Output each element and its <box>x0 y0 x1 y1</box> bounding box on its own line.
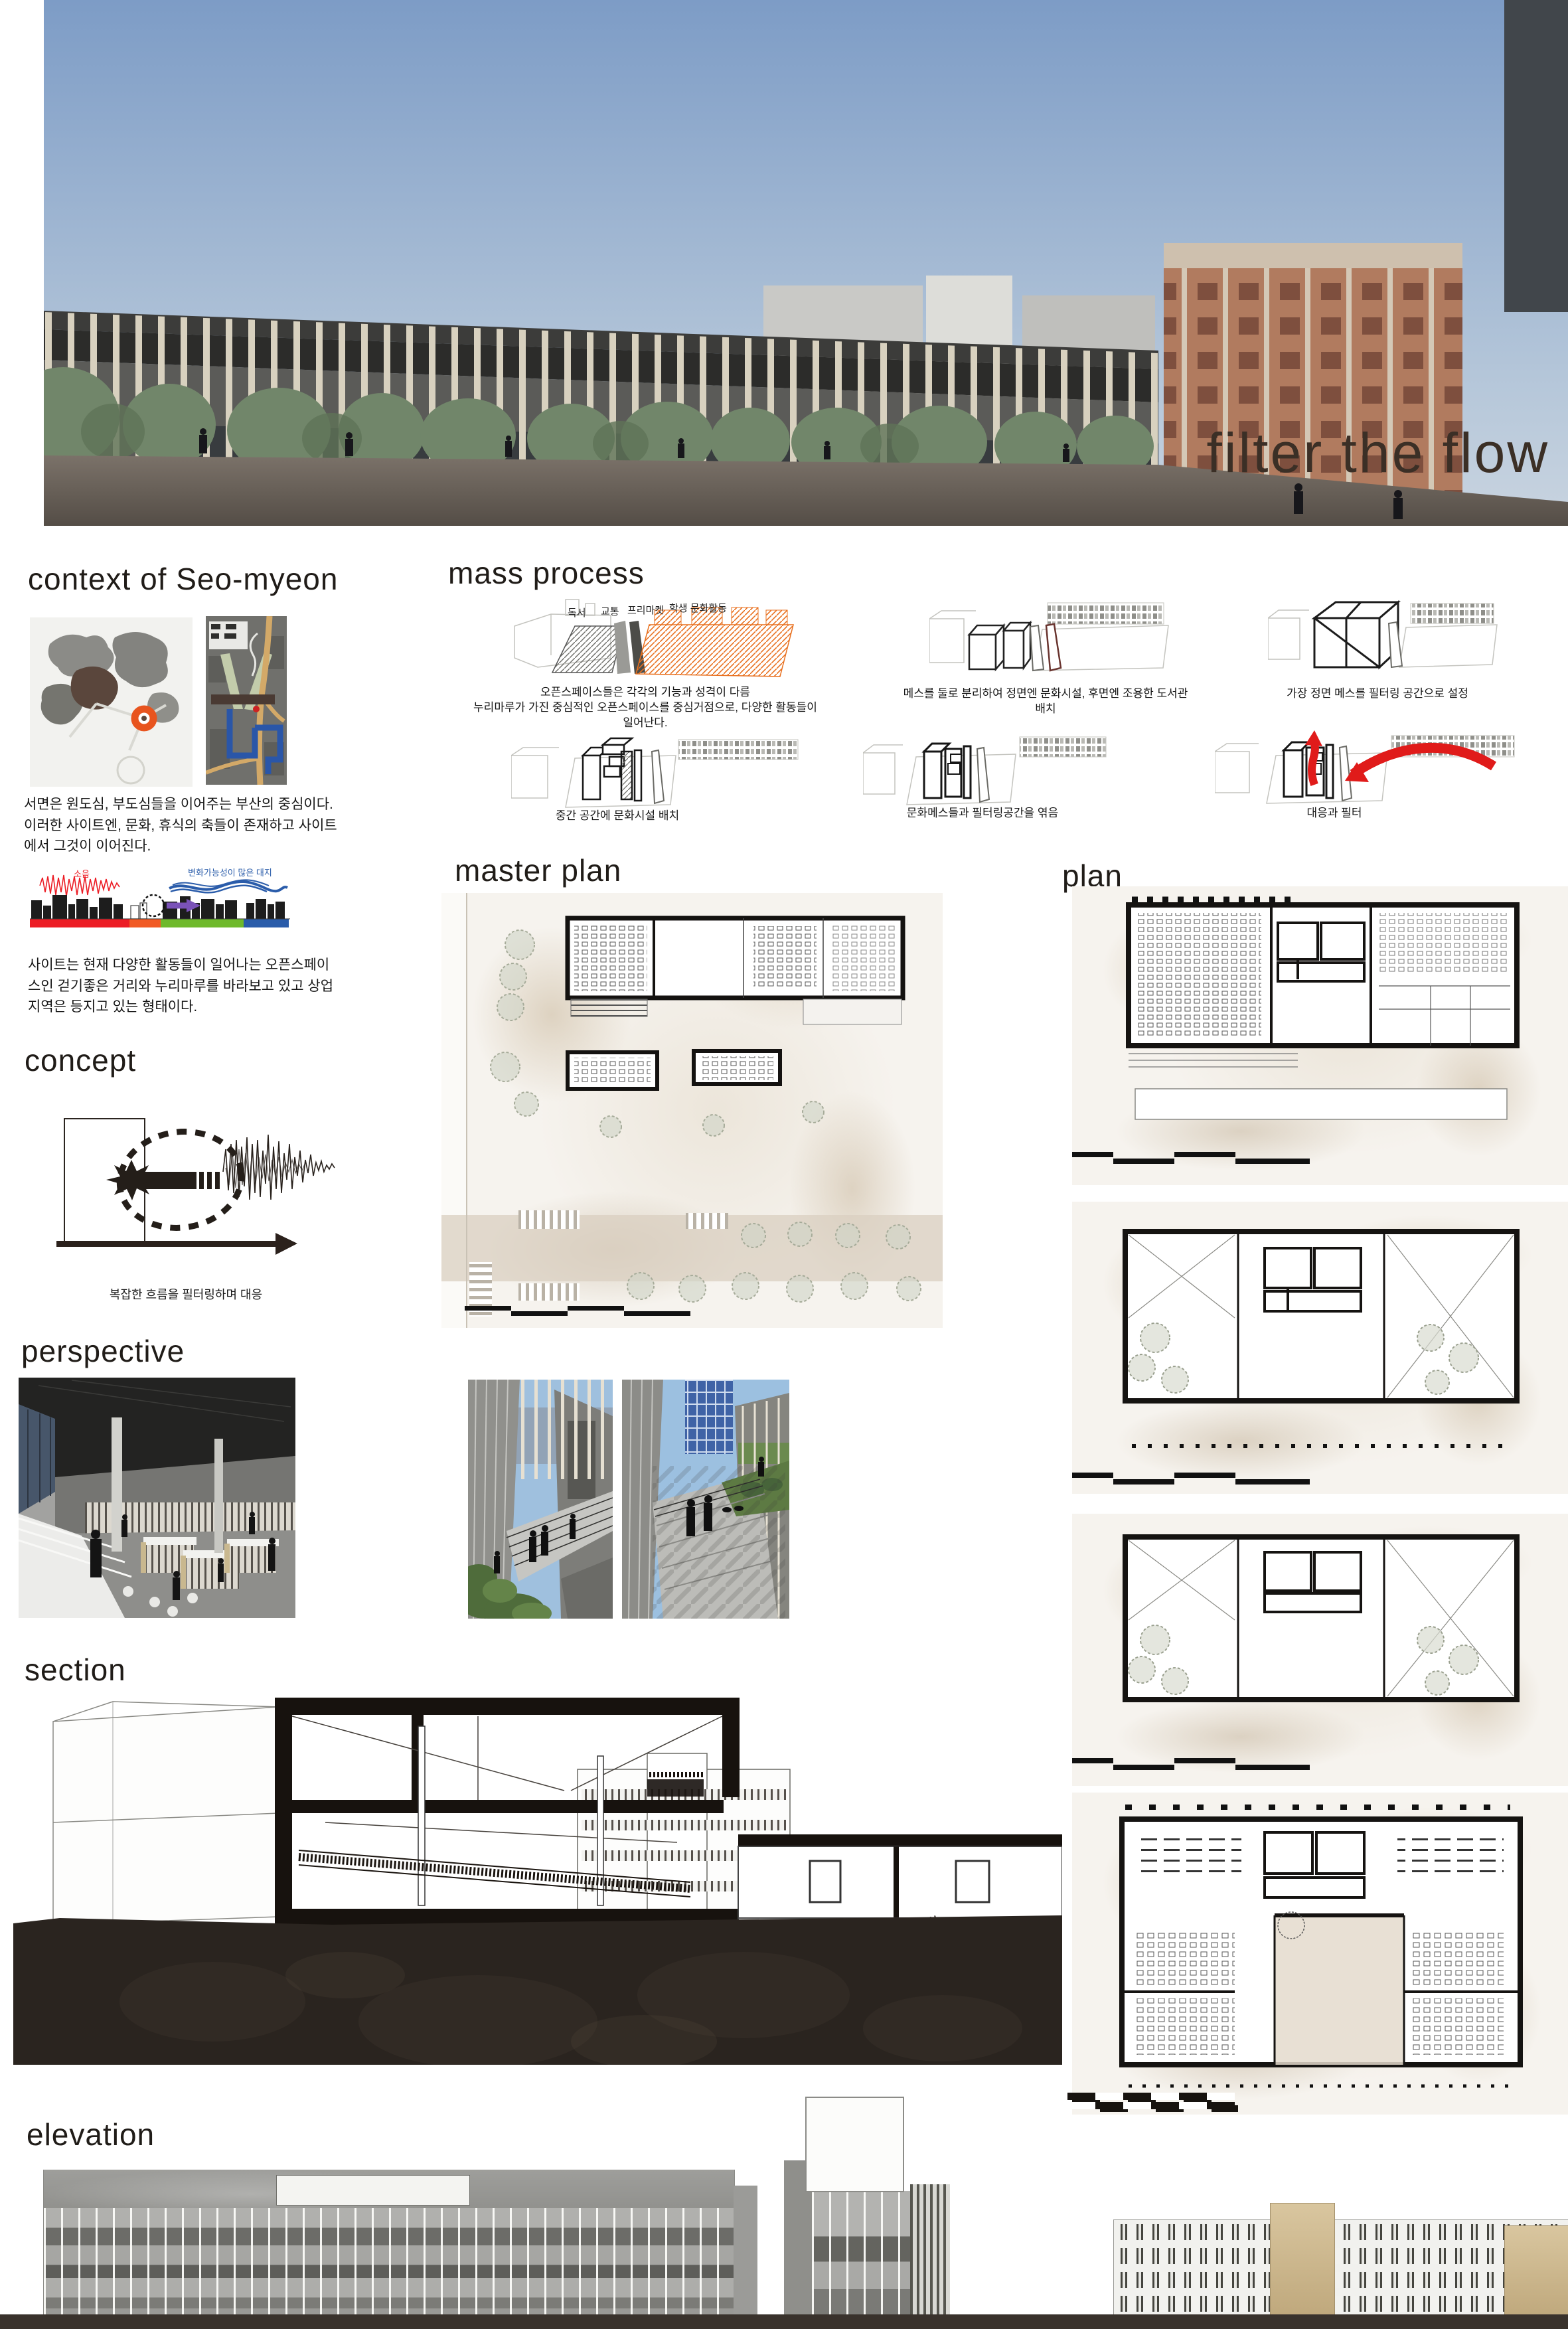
floor-plan-3-scale-bar <box>1072 1758 1310 1770</box>
mass-process-heading: mass process <box>448 555 645 591</box>
context-paragraph-1: 서면은 원도심, 부도심들을 이어주는 부산의 중심이다.이러한 사이트엔, 문… <box>24 794 344 857</box>
elevation-louvers <box>44 2208 734 2317</box>
scale-bar-row <box>1067 2102 1235 2109</box>
perspective-3-drawing <box>622 1380 789 1619</box>
master-plan-scale-bar <box>465 1306 690 1316</box>
scale-bar-row <box>1067 2093 1235 2100</box>
mass-d1-label-freemarket: 프리마켓 <box>627 603 664 617</box>
mass-diagram-2-drawing <box>929 596 1175 675</box>
mass-caption-1: 오픈스페이스들은 각각의 기능과 성격이 다름 누리마루가 가진 중심적인 오픈… <box>473 685 818 731</box>
perspective-render-1 <box>19 1378 295 1618</box>
fragment-louver-tower <box>910 2184 950 2317</box>
mass-diagram-6-drawing <box>1215 725 1520 809</box>
concept-caption: 복잡한 흐름을 필터링하며 대응 <box>20 1287 352 1303</box>
master-plan-svg <box>441 893 943 1328</box>
elevation-scale-bar <box>1067 2093 1235 2110</box>
elevation-gray-tower <box>734 2186 757 2317</box>
floor-plan-2 <box>1072 1202 1568 1494</box>
mass-caption-2: 메스를 둘로 분리하여 정면엔 문화시설, 후면엔 조용한 도서관 배치 <box>903 686 1188 717</box>
floor-plan-1-drawing <box>1072 886 1568 1185</box>
perspective-heading: perspective <box>21 1333 185 1369</box>
perspective-render-2 <box>468 1380 613 1619</box>
region-map-drawing <box>30 617 193 787</box>
mass-caption-1-line2: 누리마루가 가진 중심적인 오픈스페이스를 중심거점으로, 다양한 활동들이 일… <box>473 700 818 731</box>
concept-diagram-drawing <box>20 1105 352 1268</box>
mass-caption-4: 중간 공간에 문화시설 배치 <box>528 809 707 824</box>
floor-plan-3 <box>1072 1514 1568 1786</box>
perspective-2-drawing <box>468 1380 613 1619</box>
neighbor-window-row <box>1121 2224 1562 2240</box>
mass-diagram-5-drawing <box>863 729 1109 807</box>
strip-site-label: 변화가능성이 많은 대지 <box>188 866 272 878</box>
perspective-1-drawing <box>19 1378 295 1618</box>
mass-caption-6: 대응과 필터 <box>1258 806 1411 821</box>
master-plan-heading: master plan <box>455 852 621 888</box>
mass-d1-label-reading: 독서 <box>568 605 586 619</box>
board-title: filter the flow <box>1206 421 1549 485</box>
mass-caption-3: 가장 정면 메스를 필터링 공간으로 설정 <box>1278 686 1477 702</box>
section-heading: section <box>25 1652 126 1688</box>
elevation-ground-strip <box>0 2314 1568 2329</box>
site-strip-diagram: 소음 변화가능성이 많은 대지 <box>30 871 290 937</box>
elevation-tan-tower-2 <box>1504 2225 1568 2318</box>
fragment-louvers <box>812 2191 910 2317</box>
elevation-clerestory <box>276 2175 470 2206</box>
hero-render: filter the flow <box>0 0 1568 526</box>
strip-noise-label: 소음 <box>74 867 90 880</box>
context-heading: context of Seo-myeon <box>28 561 338 597</box>
city-map-drawing <box>206 616 287 785</box>
elevation-neighbor-building <box>1113 2219 1568 2318</box>
neighbor-window-row <box>1121 2272 1562 2288</box>
floor-plan-2-drawing <box>1072 1202 1568 1494</box>
mass-diagram-6 <box>1215 725 1520 809</box>
elevation-fragment-building <box>784 2191 950 2317</box>
mass-diagram-4-drawing <box>511 732 803 810</box>
perspective-render-3 <box>622 1380 789 1619</box>
concept-heading: concept <box>25 1042 136 1078</box>
mass-caption-1-line1: 오픈스페이스들은 각각의 기능과 성격이 다름 <box>473 685 818 700</box>
elevation-main-building <box>43 2170 735 2317</box>
mass-diagram-3-drawing <box>1268 593 1500 678</box>
presentation-board: filter the flow context of Seo-myeon <box>0 0 1568 2329</box>
plan-label-bar <box>1135 1089 1507 1119</box>
mass-caption-5: 문화메스들과 필터링공간을 엮음 <box>876 806 1089 821</box>
elevation-white-slab-tower <box>805 2097 904 2192</box>
neighbor-window-row <box>1121 2248 1562 2264</box>
concept-diagram <box>20 1105 352 1268</box>
elevation-tan-tower-1 <box>1270 2203 1335 2318</box>
neighbor-window-row <box>1121 2296 1562 2312</box>
elevation-heading: elevation <box>27 2117 155 2152</box>
mass-diagram-2 <box>929 596 1175 675</box>
context-map-city <box>206 616 287 785</box>
mass-d1-label-student-culture: 학생 문화활동 <box>669 601 727 615</box>
floor-plan-4 <box>1072 1793 1568 2115</box>
mass-diagram-5 <box>863 729 1109 807</box>
site-strip-drawing <box>30 871 290 937</box>
section-svg <box>13 1690 1062 2065</box>
floor-plan-2-scale-bar <box>1072 1473 1310 1485</box>
section-drawing <box>13 1690 1062 2065</box>
floor-plan-4-drawing <box>1072 1793 1568 2115</box>
flow-arrow-icon <box>275 1233 297 1255</box>
master-plan-drawing <box>441 893 943 1328</box>
context-map-region <box>30 617 193 787</box>
floor-plan-1-scale-bar <box>1072 1152 1310 1164</box>
floor-plan-1 <box>1072 886 1568 1185</box>
mass-d1-label-traffic: 교통 <box>601 604 619 618</box>
floor-plan-3-drawing <box>1072 1514 1568 1786</box>
mass-diagram-4 <box>511 732 803 810</box>
mass-diagram-3 <box>1268 593 1500 678</box>
context-paragraph-2: 사이트는 현재 다양한 활동들이 일어나는 오픈스페이스인 걷기좋은 거리와 누… <box>28 955 340 1018</box>
